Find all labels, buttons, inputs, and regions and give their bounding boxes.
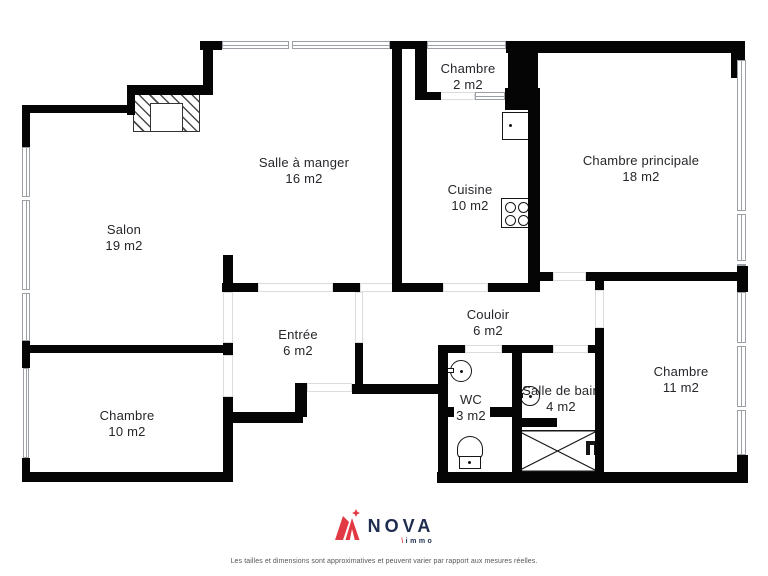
fixture-dot — [468, 461, 471, 464]
window-pane-line — [26, 148, 27, 340]
room-area: 6 m2 — [467, 323, 510, 339]
wall — [438, 345, 465, 353]
burner-icon — [505, 215, 516, 226]
chambre-principale-door — [553, 272, 586, 281]
logo-subtitle: \immo — [401, 537, 434, 546]
window — [222, 41, 390, 49]
logo-wordmark: NOVA — [368, 517, 435, 535]
room-label-salon: Salon19 m2 — [105, 222, 142, 254]
fridge-icon — [502, 112, 530, 140]
room-area: 2 m2 — [441, 77, 496, 93]
front-door — [307, 383, 352, 392]
window-pane-line — [476, 96, 504, 97]
room-name: Entrée — [278, 327, 318, 343]
salle-de-bain-door — [553, 345, 588, 353]
wall — [528, 108, 540, 283]
room-area: 10 m2 — [448, 198, 493, 214]
room-area: 16 m2 — [259, 171, 349, 187]
wall — [502, 345, 553, 353]
room-area: 19 m2 — [105, 238, 142, 254]
wall — [223, 397, 233, 482]
room-name: Couloir — [467, 307, 510, 323]
room-label-salle-de-bain: Salle de bain4 m2 — [522, 383, 600, 415]
wall — [22, 105, 133, 113]
room-name: Cuisine — [448, 182, 493, 198]
wall — [512, 353, 522, 473]
wall — [223, 343, 233, 355]
room-name: WC — [456, 392, 486, 408]
agency-branding: NOVA \immo — [0, 509, 768, 548]
window — [737, 60, 746, 266]
entree-sam-opening — [258, 283, 333, 292]
chambre11-door — [595, 290, 604, 328]
room-label-wc: WC3 m2 — [456, 392, 486, 424]
wc-door — [465, 345, 502, 353]
window — [23, 368, 29, 458]
wall — [127, 85, 205, 95]
room-area: 10 m2 — [100, 424, 155, 440]
wall — [333, 283, 360, 292]
wall — [222, 283, 258, 292]
wall — [22, 105, 30, 149]
chambre2-door — [440, 92, 475, 100]
window-mullion — [737, 260, 746, 265]
floor-plan-page: Salle à manger16 m2Salon19 m2Chambre2 m2… — [0, 0, 768, 576]
wall — [490, 407, 512, 417]
room-name: Chambre principale — [583, 153, 699, 169]
wall — [223, 412, 303, 423]
nova-logo-icon — [334, 509, 361, 548]
window-mullion — [288, 41, 293, 49]
wall — [515, 418, 557, 427]
room-label-chambre-2: Chambre2 m2 — [441, 61, 496, 93]
wall — [595, 328, 604, 473]
wall — [438, 345, 448, 473]
wall — [352, 384, 438, 394]
wall — [415, 48, 427, 94]
room-name: Chambre — [654, 364, 709, 380]
room-label-salle-a-manger: Salle à manger16 m2 — [259, 155, 349, 187]
room-label-chambre-principale: Chambre principale18 m2 — [583, 153, 699, 185]
room-area: 18 m2 — [583, 169, 699, 185]
room-label-chambre-11: Chambre11 m2 — [654, 364, 709, 396]
window-pane-line — [26, 369, 27, 457]
window-pane-line — [741, 61, 742, 265]
wall — [448, 407, 454, 417]
wall — [540, 272, 553, 281]
wall — [437, 472, 748, 483]
room-name: Salle de bain — [522, 383, 600, 399]
fixture-dot — [460, 370, 463, 373]
window-mullion — [22, 289, 30, 294]
dimensions-disclaimer: Les tailles et dimensions sont approxima… — [0, 558, 768, 565]
room-label-chambre-10: Chambre10 m2 — [100, 408, 155, 440]
room-name: Chambre — [100, 408, 155, 424]
window — [737, 292, 746, 455]
window-pane-line — [741, 293, 742, 454]
window — [427, 41, 506, 49]
window-mullion — [22, 196, 30, 201]
room-name: Salle à manger — [259, 155, 349, 171]
room-label-couloir: Couloir6 m2 — [467, 307, 510, 339]
room-label-cuisine: Cuisine10 m2 — [448, 182, 493, 214]
wall — [22, 472, 233, 482]
wall — [400, 283, 443, 292]
room-area: 3 m2 — [456, 408, 486, 424]
wall — [737, 266, 748, 292]
window-pane-line — [428, 45, 505, 46]
wall — [22, 458, 30, 474]
entree-couloir-opening — [355, 292, 363, 343]
window — [22, 147, 30, 341]
room-area: 11 m2 — [654, 380, 709, 396]
burner-icon — [505, 202, 516, 213]
wall — [488, 283, 540, 292]
wall — [506, 41, 745, 53]
fixture-dot — [509, 124, 512, 127]
window — [475, 92, 505, 100]
window-pane-line — [223, 45, 389, 46]
wall — [415, 92, 441, 100]
room-label-entree: Entrée6 m2 — [278, 327, 318, 359]
wall — [22, 345, 233, 353]
salon-entree-opening — [223, 292, 233, 343]
room-area: 4 m2 — [522, 399, 600, 415]
window-mullion — [737, 342, 746, 347]
entree-sam-opening-2 — [360, 283, 393, 292]
wall — [295, 383, 307, 417]
room-area: 6 m2 — [278, 343, 318, 359]
wall — [355, 343, 363, 388]
room-name: Salon — [105, 222, 142, 238]
stove-icon — [501, 198, 531, 228]
fireplace-flue — [150, 103, 183, 132]
floor-plan: Salle à manger16 m2Salon19 m2Chambre2 m2… — [0, 0, 768, 576]
window-mullion — [737, 406, 746, 411]
wall — [508, 41, 538, 110]
wall — [392, 48, 402, 292]
room-name: Chambre — [441, 61, 496, 77]
cuisine-door — [443, 283, 488, 292]
window-mullion — [737, 210, 746, 215]
wall — [586, 272, 737, 281]
chambre10-door — [223, 355, 233, 397]
